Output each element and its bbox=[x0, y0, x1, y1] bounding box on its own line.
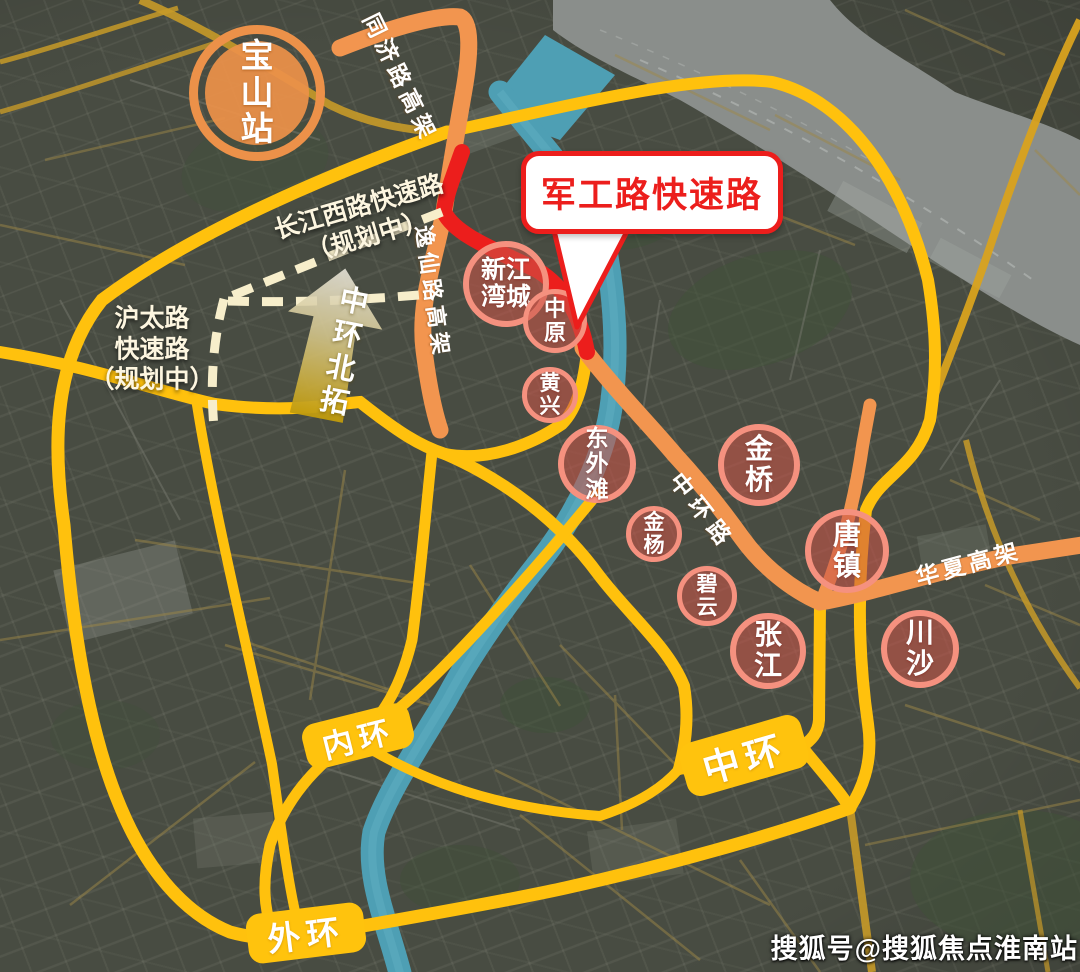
area-circle-zhangjiang: 张 江 bbox=[730, 613, 806, 689]
sohu-watermark: 搜狐号@搜狐焦点淮南站 bbox=[771, 927, 1078, 966]
area-circle-chuansha: 川 沙 bbox=[881, 610, 959, 688]
baoshan-station-circle: 宝 山 站 bbox=[205, 41, 309, 145]
shanghai-ring-roads-map: 同济路高架 逸仙路高架 中环路 华夏高架 长江西路快速路 （规划中） 沪太路 快… bbox=[0, 0, 1080, 972]
area-circle-dongwaitan: 东 外 滩 bbox=[558, 425, 636, 503]
area-circle-tangzhen: 唐 镇 bbox=[805, 509, 889, 593]
planned-label-hutai: 沪太路 快速路 （规划中） bbox=[89, 303, 214, 395]
area-circle-jinqiao: 金 桥 bbox=[718, 424, 800, 506]
area-circle-huangxing: 黄 兴 bbox=[522, 367, 578, 423]
area-circle-jinyang: 金 杨 bbox=[626, 506, 682, 562]
map-artwork bbox=[0, 0, 1080, 972]
area-circle-biyun: 碧 云 bbox=[677, 566, 737, 626]
ring-roads bbox=[0, 80, 935, 938]
area-circle-zhongyuan: 中 原 bbox=[523, 289, 587, 353]
jungong-expressway-callout: 军工路快速路 bbox=[521, 151, 783, 234]
